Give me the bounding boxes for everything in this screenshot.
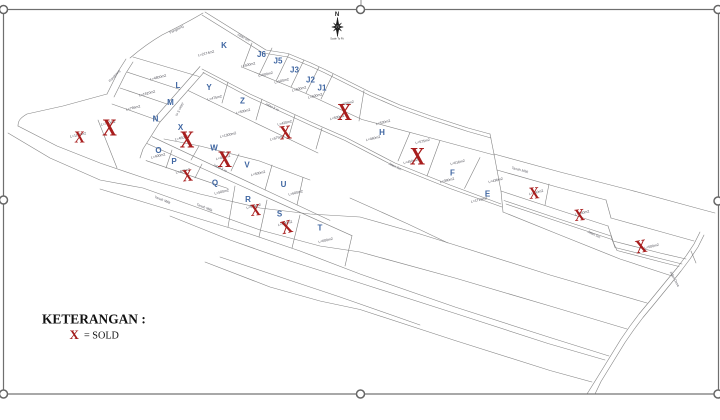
svg-text:J6: J6 [257,50,266,59]
svg-text:= SOLD: = SOLD [84,331,119,342]
svg-text:X: X [528,184,540,203]
svg-text:P: P [171,157,177,166]
svg-text:X: X [337,98,352,125]
svg-text:X: X [70,327,80,342]
svg-text:X: X [74,128,85,146]
svg-text:X: X [218,146,233,172]
svg-text:X: X [102,114,117,141]
svg-text:T: T [318,224,323,233]
svg-text:V: V [244,161,250,170]
svg-text:X: X [180,126,195,153]
svg-text:J3: J3 [290,66,299,75]
svg-text:J2: J2 [306,76,315,85]
svg-text:Y: Y [206,83,212,92]
svg-text:H: H [379,128,385,137]
svg-text:J5: J5 [274,57,283,66]
svg-text:Scale To Fit: Scale To Fit [330,37,344,41]
svg-text:KETERANGAN :: KETERANGAN : [42,312,146,327]
svg-text:J1: J1 [318,84,327,93]
svg-text:Q: Q [212,179,218,188]
svg-text:U: U [281,180,287,189]
svg-text:X: X [410,142,425,170]
svg-text:M: M [167,98,174,107]
svg-text:N: N [153,115,159,124]
svg-text:K: K [221,41,227,50]
svg-text:N: N [335,12,339,18]
svg-text:L: L [176,81,181,90]
svg-text:Z: Z [240,97,245,106]
